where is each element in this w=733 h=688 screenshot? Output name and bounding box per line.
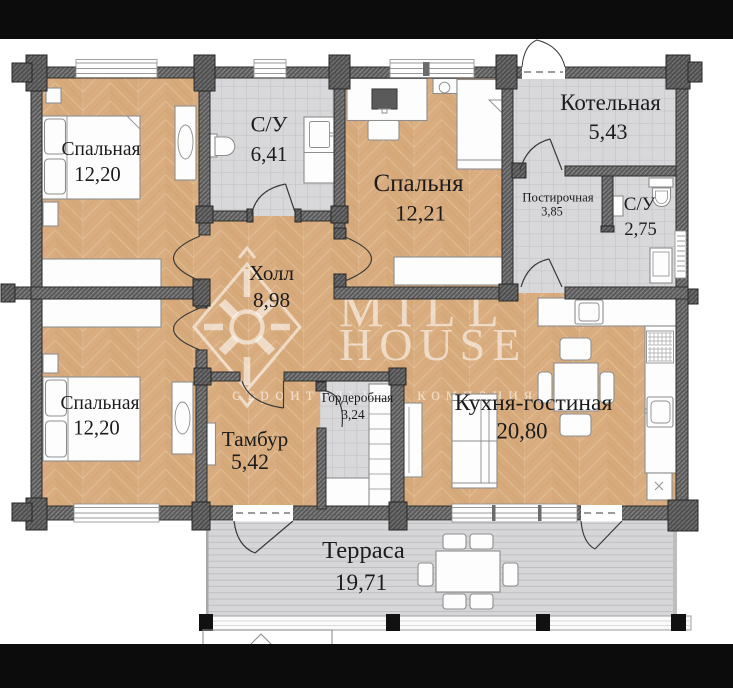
svg-text:5,42: 5,42 [231, 450, 269, 474]
svg-text:С/У: С/У [624, 194, 656, 215]
svg-text:Терраса: Терраса [322, 537, 405, 564]
svg-text:Кухня-гостиная: Кухня-гостиная [455, 390, 613, 416]
svg-text:20,80: 20,80 [496, 419, 547, 444]
svg-text:3,85: 3,85 [541, 205, 563, 219]
svg-text:8,98: 8,98 [253, 288, 290, 312]
svg-text:HOUSE: HOUSE [339, 319, 527, 370]
svg-text:6,41: 6,41 [251, 142, 288, 166]
svg-text:12,20: 12,20 [74, 164, 121, 186]
svg-text:12,20: 12,20 [73, 418, 120, 440]
svg-text:Тамбур: Тамбур [222, 427, 288, 451]
svg-text:Котельная: Котельная [560, 90, 661, 115]
svg-text:С/У: С/У [251, 112, 288, 137]
svg-text:19,71: 19,71 [335, 570, 387, 596]
svg-text:5,43: 5,43 [588, 119, 627, 144]
svg-text:Спальня: Спальня [373, 170, 464, 197]
svg-text:Спальная: Спальная [61, 393, 140, 414]
svg-text:Холл: Холл [249, 261, 294, 285]
svg-text:Спальная: Спальная [62, 139, 141, 160]
svg-text:Гордеробная: Гордеробная [322, 390, 394, 405]
svg-text:Постирочная: Постирочная [522, 191, 594, 205]
svg-text:2,75: 2,75 [624, 220, 656, 240]
svg-text:3,24: 3,24 [341, 407, 365, 422]
svg-text:12,21: 12,21 [395, 201, 446, 226]
